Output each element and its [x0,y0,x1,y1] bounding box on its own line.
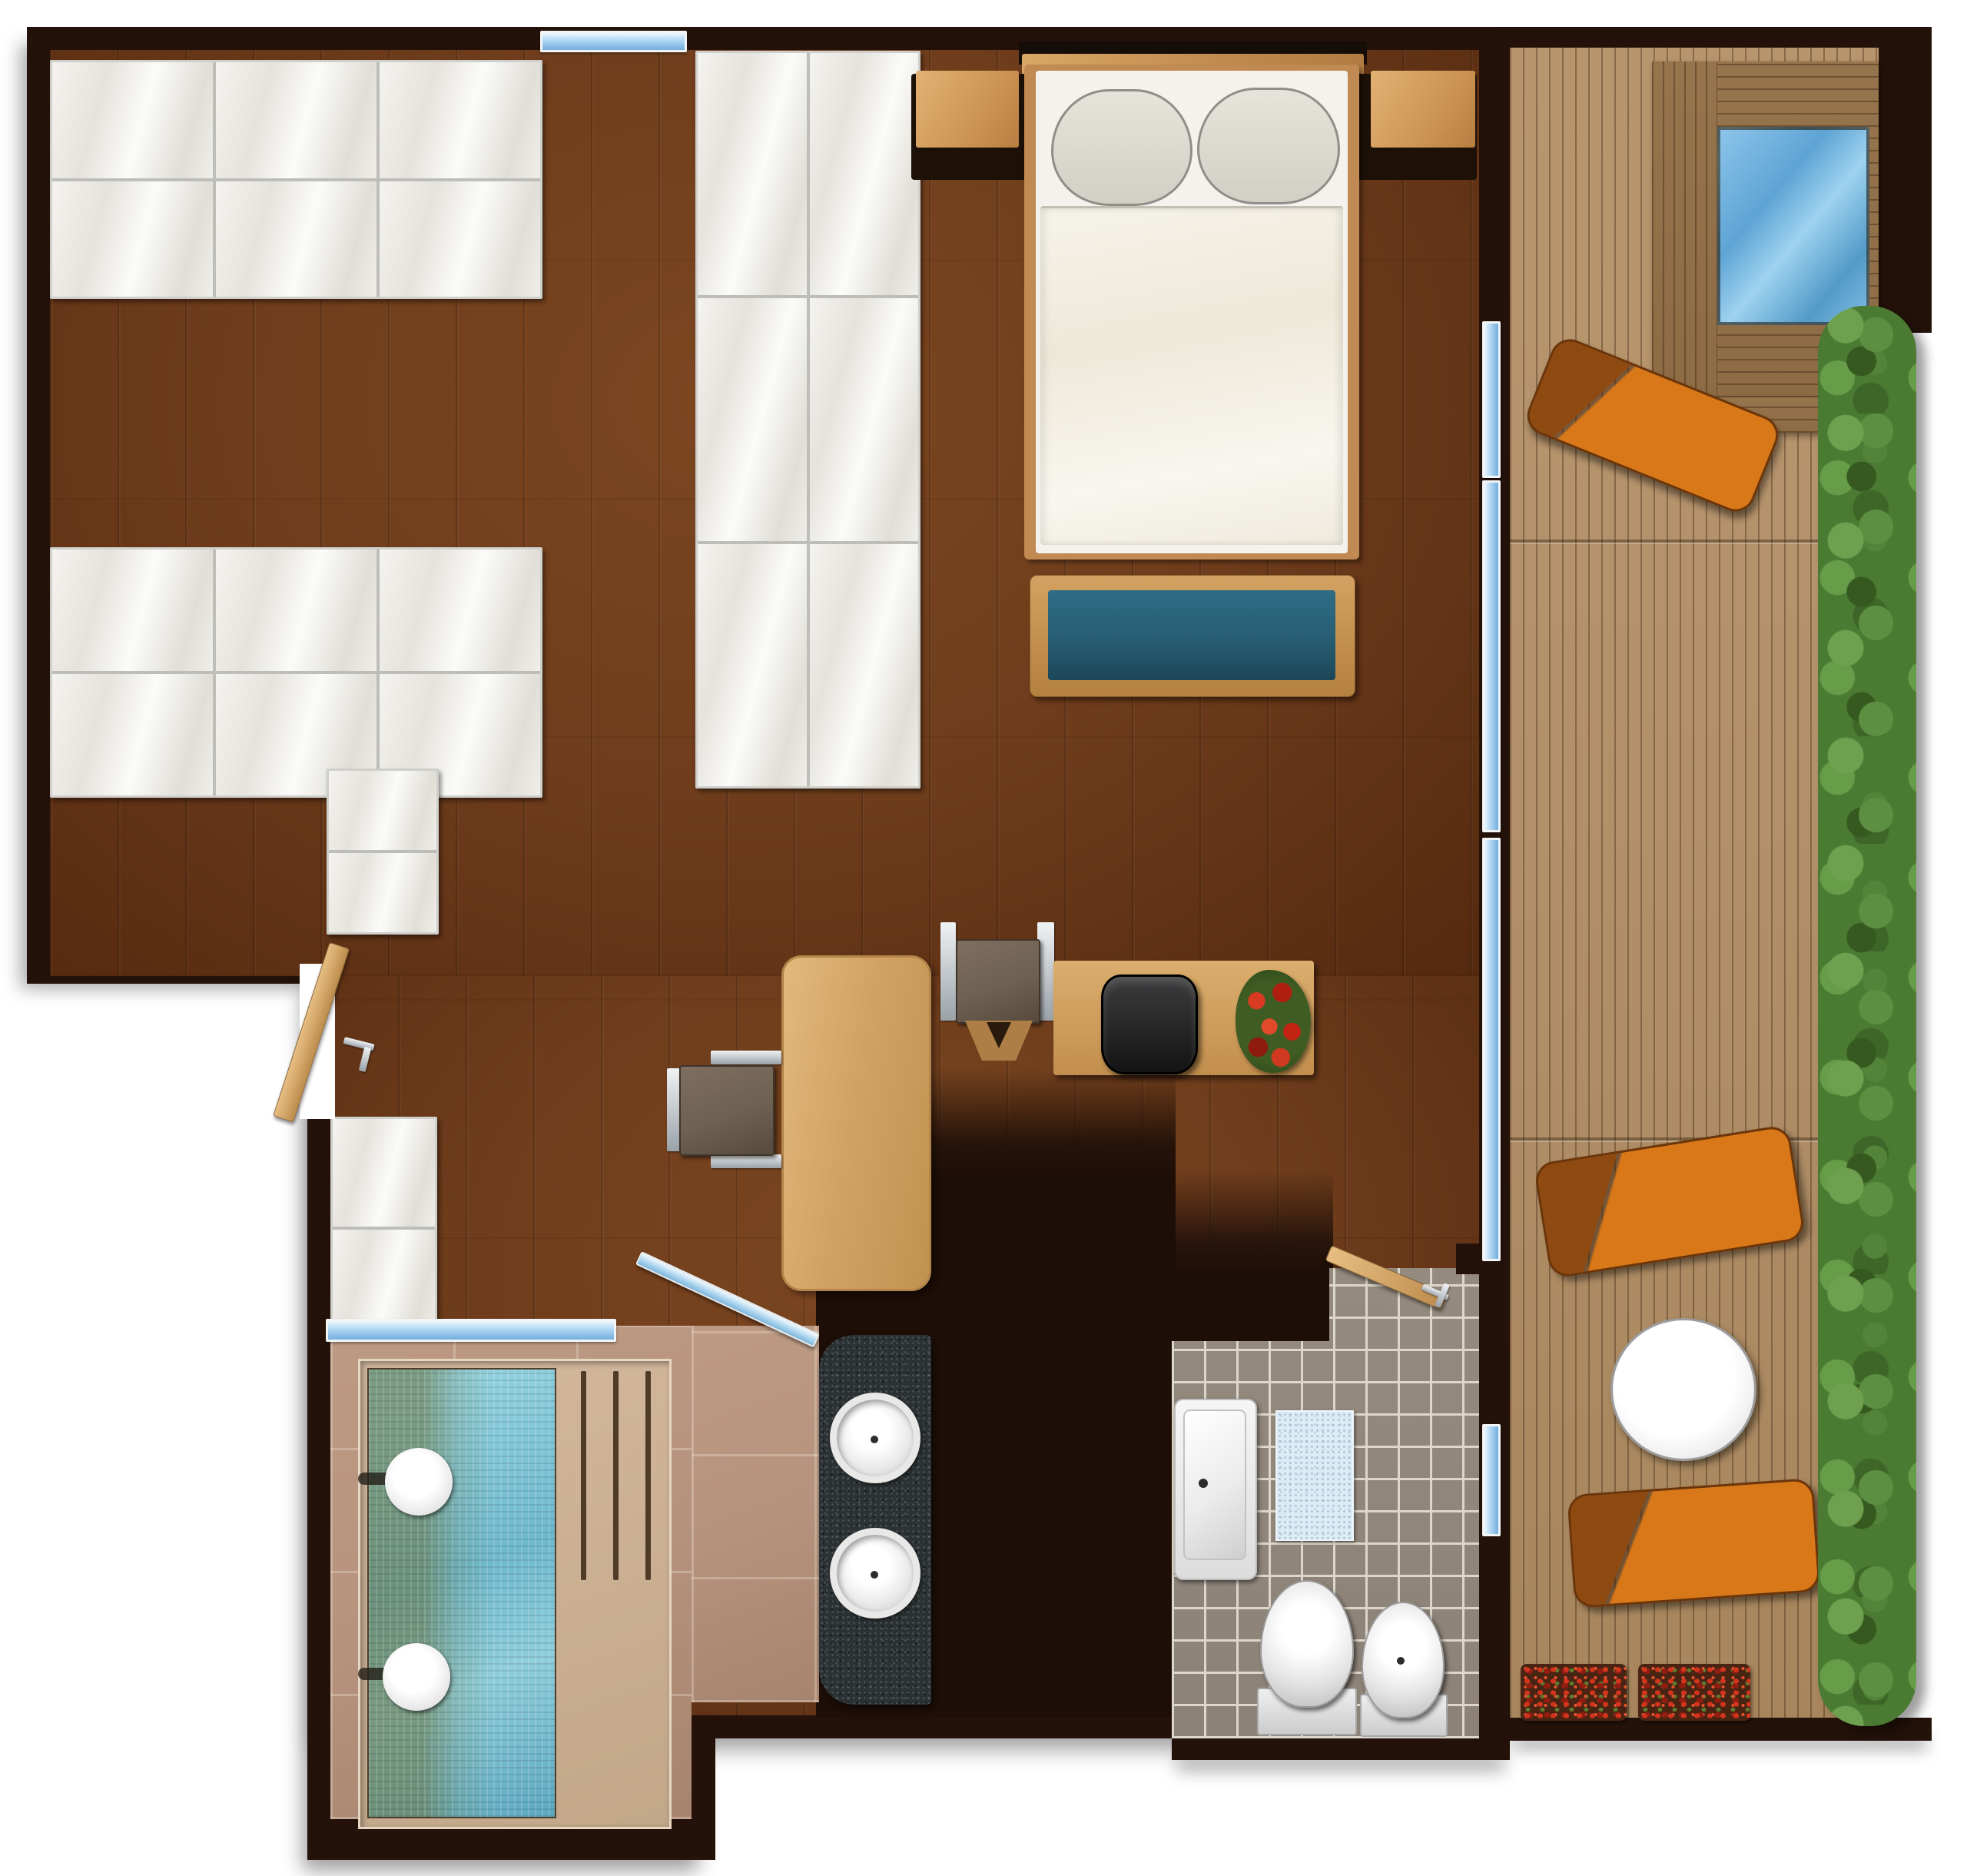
cabinet-upper [327,769,439,935]
window-bedroom-2 [1482,480,1501,832]
wardrobe-top [50,60,542,299]
desk-flowers [1236,970,1311,1073]
nightstand-left [916,71,1019,148]
closet-door [216,62,376,178]
closet-door [380,550,540,671]
chair-footrest-notch [987,1022,1011,1048]
closet-door [52,550,213,671]
platform-side-planks [1652,61,1717,397]
spa-pool-water [367,1368,556,1818]
bathroom-corner-wall [1172,1268,1329,1341]
chair-rail [940,922,956,1021]
wardrobe-tall [695,51,920,789]
closet-door [52,181,213,297]
bidet-drain [1397,1657,1405,1665]
sink-drain [871,1571,878,1579]
window-top [540,31,687,52]
closet-door [698,53,807,295]
closet-door [810,544,919,786]
closet-door [698,544,807,786]
closet-door [52,62,213,178]
window-bedroom-3 [1482,838,1501,1261]
spa-steps [558,1368,662,1583]
window-spa [326,1319,616,1342]
wardrobe-middle [50,547,542,798]
lounger-3 [1567,1478,1821,1609]
hedge [1818,306,1916,1726]
wall-bathroom-bottom [1172,1738,1510,1760]
office-chair [1101,975,1198,1074]
closet-door [810,53,919,295]
pillow-right [1197,88,1340,204]
floor-plan [0,0,1967,1876]
cabinet-door [329,853,436,932]
cabinet-lower [330,1117,437,1339]
chair-top [956,939,1040,1024]
flower-box-1 [1521,1664,1627,1721]
bath-mat [1275,1410,1354,1541]
bathtub-basin [1183,1409,1246,1560]
bed-bench-cushion [1048,590,1335,680]
chair-rail [711,1154,781,1168]
bed-sheet [1040,206,1343,545]
tub-drain [1199,1479,1208,1488]
closet-door [810,298,919,540]
chair-side [679,1065,775,1156]
closet-door [216,181,376,297]
vanity-counter [819,1335,931,1705]
chair-rail [711,1051,781,1064]
terrace-wall-right [1879,27,1932,333]
window-bathroom [1482,1424,1501,1536]
closet-door [216,550,376,671]
terrace-wall-top [1510,27,1932,48]
spa-floor-east [692,1326,819,1702]
terrace-table [1610,1318,1756,1461]
dining-table [781,955,931,1291]
cabinet-door [333,1119,435,1227]
flower-box-2 [1638,1664,1750,1721]
closet-door [698,298,807,540]
spa-headrest [385,1448,453,1516]
closet-door [380,181,540,297]
window-bedroom-1 [1482,321,1501,478]
pillow-left [1051,89,1192,206]
sink-drain [871,1436,878,1443]
nightstand-right [1371,71,1475,148]
closet-door [380,62,540,178]
bathroom-door-jamb [1456,1243,1479,1274]
spa-headrest [383,1643,450,1711]
cabinet-door [329,771,436,850]
closet-door [52,674,213,795]
plunge-pool-water [1717,127,1869,325]
